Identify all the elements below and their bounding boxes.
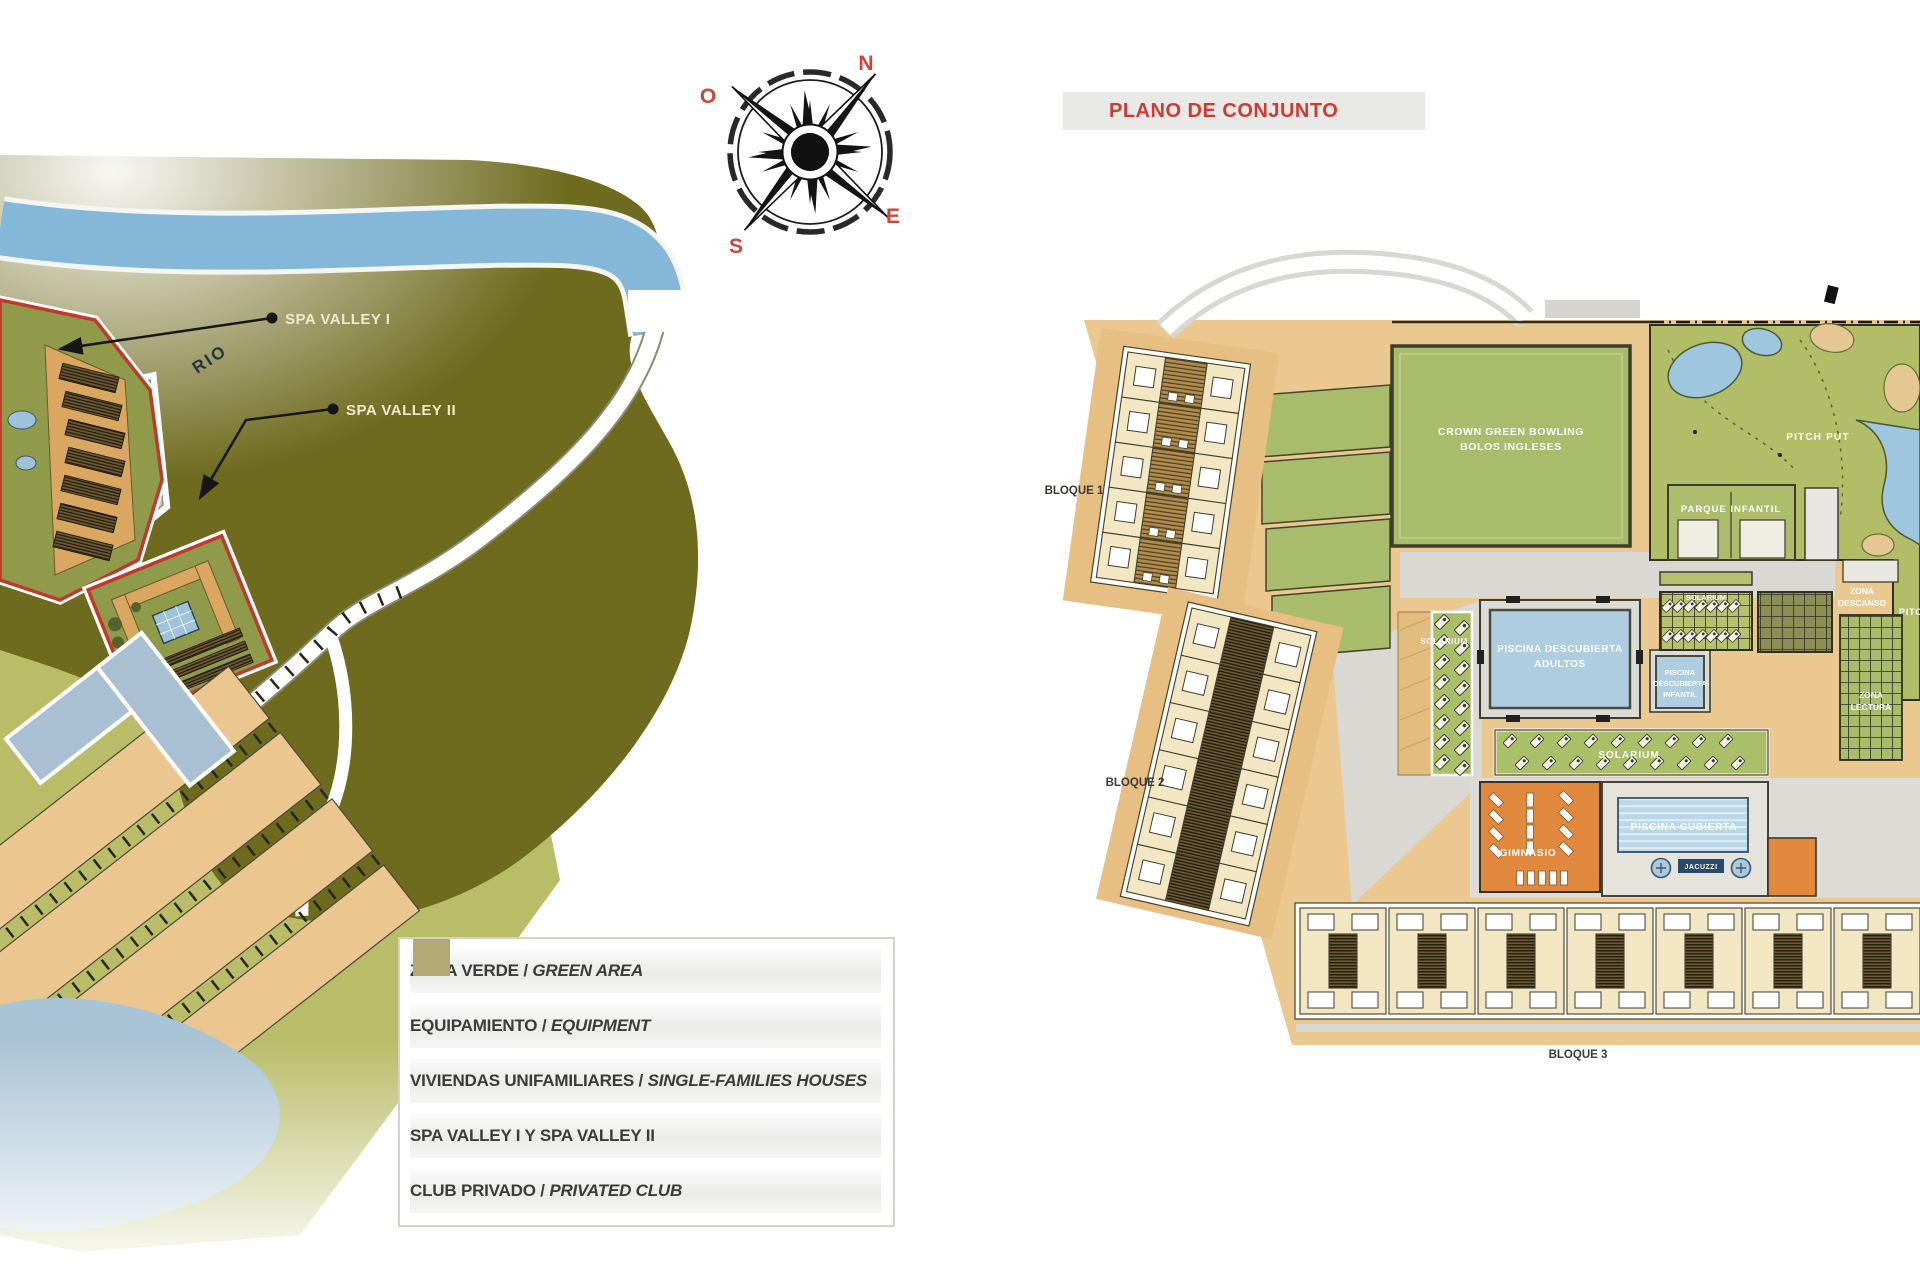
legend-label: SPA VALLEY I Y SPA VALLEY II — [410, 1126, 655, 1146]
page: SPA VALLEY I SPA VALLEY II RIO N — [0, 0, 1920, 1280]
infant-pool-label-2: DESCUBIERTA — [1653, 679, 1707, 688]
legend-row-club-privado: CLUB PRIVADO / PRIVATED CLUB — [410, 1169, 881, 1213]
bowling-green: CROWN GREEN BOWLING BOLOS INGLESES — [1392, 346, 1630, 546]
infant-pool-label-1: PISCINA — [1665, 668, 1696, 677]
infant-pool: PISCINA DESCUBIERTA INFANTIL — [1650, 650, 1710, 712]
playground: PARQUE INFANTIL — [1668, 485, 1838, 560]
bowling-label-2: BOLOS INGLESES — [1460, 441, 1562, 453]
pergola-solarium-label: SOLARIUM — [1686, 593, 1726, 602]
adult-pool: PISCINA DESCUBIERTA ADULTOS — [1477, 596, 1643, 722]
solarium-strip-label: SOLARIUM — [1420, 637, 1467, 646]
spa-valley-1-label: SPA VALLEY I — [285, 311, 390, 328]
bloque-3-building — [1295, 903, 1920, 1019]
legend-row-zona-verde: ZONA VERDE / GREEN AREA — [410, 949, 881, 993]
bloque-2-label: BLOQUE 2 — [1106, 777, 1165, 789]
legend-row-spa-valley: SPA VALLEY I Y SPA VALLEY II — [410, 1114, 881, 1158]
adult-pool-label-1: PISCINA DESCUBIERTA — [1497, 644, 1623, 655]
legend-row-equipamiento: EQUIPAMIENTO / EQUIPMENT — [410, 1004, 881, 1048]
zona-lectura-1: ZONA — [1859, 690, 1883, 700]
zona-descanso-1: ZONA — [1850, 586, 1874, 596]
compass-s: S — [729, 235, 743, 258]
bloque-1-building — [1063, 328, 1280, 625]
bloque-1-label: BLOQUE 1 — [1045, 485, 1104, 497]
legend: ZONA VERDE / GREEN AREA EQUIPAMIENTO / E… — [398, 937, 895, 1227]
playground-label: PARQUE INFANTIL — [1681, 504, 1781, 515]
plan-title-bar: PLANO DE CONJUNTO — [1063, 92, 1425, 130]
site-plan: CROWN GREEN BOWLING BOLOS INGLESES PITCH… — [960, 0, 1920, 1280]
pitch-putt-label: PITCH PUT — [1786, 432, 1850, 443]
gym-label: GIMNASIO — [1500, 848, 1557, 859]
boundary-marker — [1824, 285, 1839, 304]
zona-lectura-2: LECTURA — [1851, 702, 1892, 712]
indoor-pool-label: PISCINA CUBIERTA — [1631, 822, 1738, 833]
adult-pool-label-2: ADULTOS — [1534, 659, 1586, 670]
legend-label: EQUIPAMIENTO / EQUIPMENT — [410, 1016, 650, 1036]
zona-descanso-2: DESCANSO — [1838, 598, 1887, 608]
compass-n: N — [858, 52, 873, 75]
legend-label: CLUB PRIVADO / PRIVATED CLUB — [410, 1181, 682, 1201]
plan-title: PLANO DE CONJUNTO — [1063, 92, 1425, 130]
jacuzzi-label: JACUZZI — [1684, 864, 1717, 871]
bloque-3-path — [1296, 1024, 1920, 1032]
solarium-main: SOLARIUM — [1495, 730, 1768, 775]
legend-row-viviendas: VIVIENDAS UNIFAMILIARES / SINGLE-FAMILIE… — [410, 1059, 881, 1103]
spa-valley-2-label: SPA VALLEY II — [346, 402, 456, 419]
bloque-3-label: BLOQUE 3 — [1549, 1049, 1608, 1061]
gym-annex — [1768, 838, 1816, 896]
blank-label-box — [628, 290, 716, 332]
bowling-label-1: CROWN GREEN BOWLING — [1438, 426, 1584, 438]
legend-label: VIVIENDAS UNIFAMILIARES / SINGLE-FAMILIE… — [410, 1071, 867, 1091]
parking-strip — [1545, 300, 1640, 318]
compass-o: O — [700, 85, 716, 108]
gym: GIMNASIO — [1480, 782, 1600, 892]
legend-swatch-khaki — [413, 939, 450, 976]
solarium-strip: SOLARIUM — [1398, 612, 1472, 776]
compass-e: E — [886, 205, 900, 228]
solarium-main-label: SOLARIUM — [1598, 750, 1659, 761]
infant-pool-label-3: INFANTIL — [1663, 690, 1697, 699]
